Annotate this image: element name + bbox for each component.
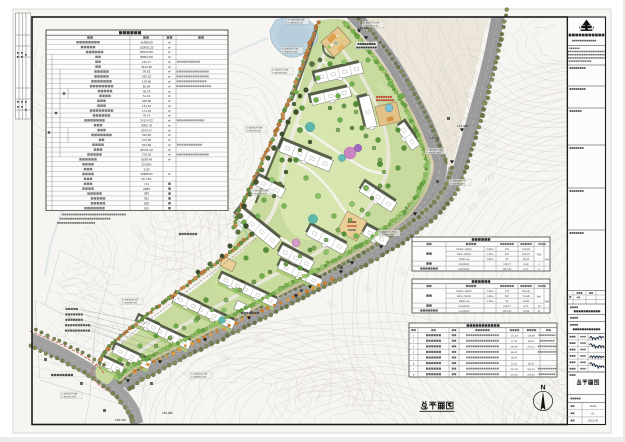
svg-text:881: 881 <box>537 296 542 299</box>
svg-text:90m²~150m²: 90m²~150m² <box>457 253 471 256</box>
svg-text:Y=629406.682: Y=629406.682 <box>272 72 288 75</box>
svg-text:X=2802579.598: X=2802579.598 <box>246 127 263 130</box>
svg-text:0.8/100m²: 0.8/100m² <box>458 263 469 266</box>
svg-text:m²: m² <box>168 158 171 162</box>
svg-text:130.300: 130.300 <box>162 411 173 415</box>
svg-text:170: 170 <box>505 290 510 293</box>
svg-text:8093.78: 8093.78 <box>141 123 152 127</box>
svg-text:217.26: 217.26 <box>510 368 518 371</box>
svg-text:Y=628269.282: Y=628269.282 <box>122 302 138 305</box>
svg-text:1021.42: 1021.42 <box>502 310 512 313</box>
svg-text:22.00%: 22.00% <box>141 162 152 166</box>
svg-text:48.00: 48.00 <box>523 258 530 261</box>
svg-text:m²: m² <box>168 60 171 64</box>
svg-text:N: N <box>540 385 545 392</box>
svg-text:41086.00: 41086.00 <box>140 40 153 44</box>
svg-text:44.80: 44.80 <box>523 300 530 303</box>
svg-text:22731.12: 22731.12 <box>140 148 153 152</box>
svg-text:340.00: 340.00 <box>522 290 530 293</box>
svg-text:m²: m² <box>168 75 171 79</box>
svg-text:37.19: 37.19 <box>511 340 518 343</box>
svg-text:m²: m² <box>168 133 171 137</box>
svg-text:1021.42: 1021.42 <box>502 268 512 271</box>
svg-text:1.2/hu: 1.2/hu <box>487 253 495 256</box>
svg-text:150m²~180m²: 150m²~180m² <box>456 290 472 293</box>
svg-text:X=2802770.646: X=2802770.646 <box>363 22 380 25</box>
svg-text:374.65: 374.65 <box>510 373 518 376</box>
svg-text:m²: m² <box>168 119 171 123</box>
svg-text:X=2802044.450: X=2802044.450 <box>191 373 208 376</box>
svg-text:9108.48: 9108.48 <box>141 158 152 162</box>
svg-text:51.31: 51.31 <box>511 362 518 365</box>
svg-text:X=2802157.598: X=2802157.598 <box>61 393 78 396</box>
svg-text:m²: m² <box>168 138 171 142</box>
svg-text:1872.26: 1872.26 <box>141 65 152 69</box>
svg-text:X=2802900.046: X=2802900.046 <box>288 19 305 22</box>
svg-text:1.4/hu: 1.4/hu <box>487 300 495 303</box>
svg-text:136.00: 136.00 <box>522 248 530 251</box>
svg-text:X=2802281.178: X=2802281.178 <box>426 149 443 152</box>
svg-text:512: 512 <box>505 295 510 298</box>
svg-text:m²: m² <box>168 114 171 118</box>
svg-text:376.52: 376.52 <box>142 153 152 157</box>
svg-text:m²: m² <box>168 99 171 103</box>
svg-text:36.73%: 36.73% <box>141 177 152 181</box>
svg-text:250.12: 250.12 <box>527 346 535 349</box>
svg-text:m²: m² <box>168 55 171 59</box>
svg-text:2289: 2289 <box>143 187 150 191</box>
svg-text:Y=629165.842: Y=629165.842 <box>252 193 268 196</box>
svg-text:X=2802792.738: X=2802792.738 <box>282 48 299 51</box>
svg-text:246.12: 246.12 <box>142 75 152 79</box>
svg-text:X=2802199.725: X=2802199.725 <box>450 180 467 183</box>
svg-text:940.00: 940.00 <box>142 99 152 103</box>
svg-text:115.17: 115.17 <box>503 305 511 308</box>
svg-text:Y=629244.006: Y=629244.006 <box>450 183 466 186</box>
svg-text:Y=629214.382: Y=629214.382 <box>379 234 395 237</box>
svg-text:01: 01 <box>592 412 595 415</box>
svg-text:m²: m² <box>168 89 171 93</box>
svg-text:76.74: 76.74 <box>143 114 151 118</box>
svg-text:131.94: 131.94 <box>142 104 152 108</box>
svg-text:m²: m² <box>168 109 171 113</box>
svg-text:2021.06: 2021.06 <box>588 420 598 423</box>
svg-text:171.33: 171.33 <box>142 109 152 113</box>
svg-text:m²: m² <box>168 79 171 83</box>
svg-text:m²: m² <box>168 143 171 147</box>
svg-text:X=2802475.598: X=2802475.598 <box>252 190 269 193</box>
svg-text:Y=629205.842: Y=629205.842 <box>246 130 262 133</box>
svg-text:38.02: 38.02 <box>528 340 535 343</box>
svg-text:376.52: 376.52 <box>527 373 535 376</box>
svg-text:85.09: 85.09 <box>511 351 518 354</box>
svg-text:85.09: 85.09 <box>143 84 151 88</box>
svg-text:0.8/100m²: 0.8/100m² <box>458 268 469 271</box>
svg-text:m²: m² <box>168 148 171 152</box>
svg-text:X=2802138.457: X=2802138.457 <box>122 299 139 302</box>
svg-text:Y=629425.137: Y=629425.137 <box>288 22 304 25</box>
svg-text:716.80: 716.80 <box>522 295 530 298</box>
svg-text:2.00: 2.00 <box>144 167 150 171</box>
svg-text:82913.00: 82913.00 <box>140 50 153 54</box>
svg-text:1.0/hu: 1.0/hu <box>487 290 495 293</box>
svg-text:171.93: 171.93 <box>510 334 518 337</box>
svg-text:115.17: 115.17 <box>503 263 511 266</box>
svg-text:39.62: 39.62 <box>143 70 151 74</box>
svg-text:m²: m² <box>168 65 171 69</box>
svg-text:126.120: 126.120 <box>358 26 369 30</box>
svg-text:Y=628594.336: Y=628594.336 <box>191 376 207 379</box>
svg-text:13288.65: 13288.65 <box>140 172 153 176</box>
svg-text:138.700: 138.700 <box>115 418 126 422</box>
svg-text:2976.47: 2976.47 <box>141 128 152 132</box>
svg-text:0.69: 0.69 <box>524 263 529 266</box>
svg-text:0.8/hu: 0.8/hu <box>487 248 495 251</box>
svg-text:58.78: 58.78 <box>511 357 518 360</box>
svg-text:178.96: 178.96 <box>142 79 152 83</box>
svg-text:58.78: 58.78 <box>143 89 151 93</box>
svg-text:90m²~150m²: 90m²~150m² <box>457 295 471 298</box>
svg-text:593.62: 593.62 <box>142 133 152 137</box>
svg-text:789: 789 <box>537 254 542 257</box>
svg-text:935: 935 <box>144 206 149 210</box>
svg-text:989: 989 <box>144 192 149 196</box>
svg-text:Y=629376.338: Y=629376.338 <box>282 51 298 54</box>
svg-text:714: 714 <box>144 182 149 186</box>
svg-text:959: 959 <box>545 259 550 262</box>
svg-text:56.78: 56.78 <box>528 362 535 365</box>
svg-text:m²: m² <box>168 104 171 108</box>
svg-text:554.52: 554.52 <box>527 368 535 371</box>
svg-text:249.90: 249.90 <box>510 346 518 349</box>
svg-text:131.90: 131.90 <box>430 136 440 140</box>
svg-text:110691.22: 110691.22 <box>140 45 154 49</box>
svg-text:614.40: 614.40 <box>522 253 530 256</box>
svg-text:1.5/hu: 1.5/hu <box>487 258 495 261</box>
svg-text:273.09: 273.09 <box>142 138 152 142</box>
svg-text:1.4/hu: 1.4/hu <box>487 295 495 298</box>
svg-text:0.6/100m²: 0.6/100m² <box>458 305 469 308</box>
svg-text:m²: m² <box>168 123 171 127</box>
svg-text:m²: m² <box>168 70 171 74</box>
svg-text:150m² up: 150m² up <box>459 300 470 303</box>
svg-text:m²: m² <box>168 128 171 132</box>
svg-text:51.31: 51.31 <box>143 94 151 98</box>
svg-text:178.96: 178.96 <box>527 334 535 337</box>
svg-text:m²: m² <box>168 94 171 98</box>
svg-text:628: 628 <box>144 201 149 205</box>
svg-text:m²: m² <box>168 45 171 49</box>
svg-text:361: 361 <box>144 197 149 201</box>
svg-text:m²: m² <box>168 172 171 176</box>
svg-text:m²: m² <box>168 50 171 54</box>
svg-text:X=2802157.598: X=2802157.598 <box>272 69 289 72</box>
svg-text:170: 170 <box>505 248 510 251</box>
svg-text:150m²~180m²: 150m²~180m² <box>456 248 472 251</box>
svg-text:150m² up: 150m² up <box>459 258 470 261</box>
svg-text:554.62: 554.62 <box>142 143 152 147</box>
svg-text:Y=629537.992: Y=629537.992 <box>426 152 442 155</box>
svg-text:115.17: 115.17 <box>142 60 151 64</box>
svg-text:6.21: 6.21 <box>524 305 529 308</box>
svg-text:80624.68: 80624.68 <box>140 55 153 59</box>
svg-text:m²: m² <box>168 153 171 157</box>
svg-text:1.0/100m²: 1.0/100m² <box>458 310 469 313</box>
svg-text:Y=628262.639: Y=628262.639 <box>61 396 77 399</box>
svg-text:8.17: 8.17 <box>524 268 529 271</box>
svg-text:m²: m² <box>168 84 171 88</box>
svg-text:134.400: 134.400 <box>457 124 468 128</box>
svg-text:JS-01: JS-01 <box>589 405 597 408</box>
svg-text:X=2802236.460: X=2802236.460 <box>379 231 396 234</box>
svg-text:512: 512 <box>505 253 510 256</box>
svg-text:10.56: 10.56 <box>523 310 530 313</box>
svg-text:935: 935 <box>545 301 550 304</box>
svg-text:m²: m² <box>168 40 171 44</box>
svg-text:27674.22: 27674.22 <box>140 119 153 123</box>
